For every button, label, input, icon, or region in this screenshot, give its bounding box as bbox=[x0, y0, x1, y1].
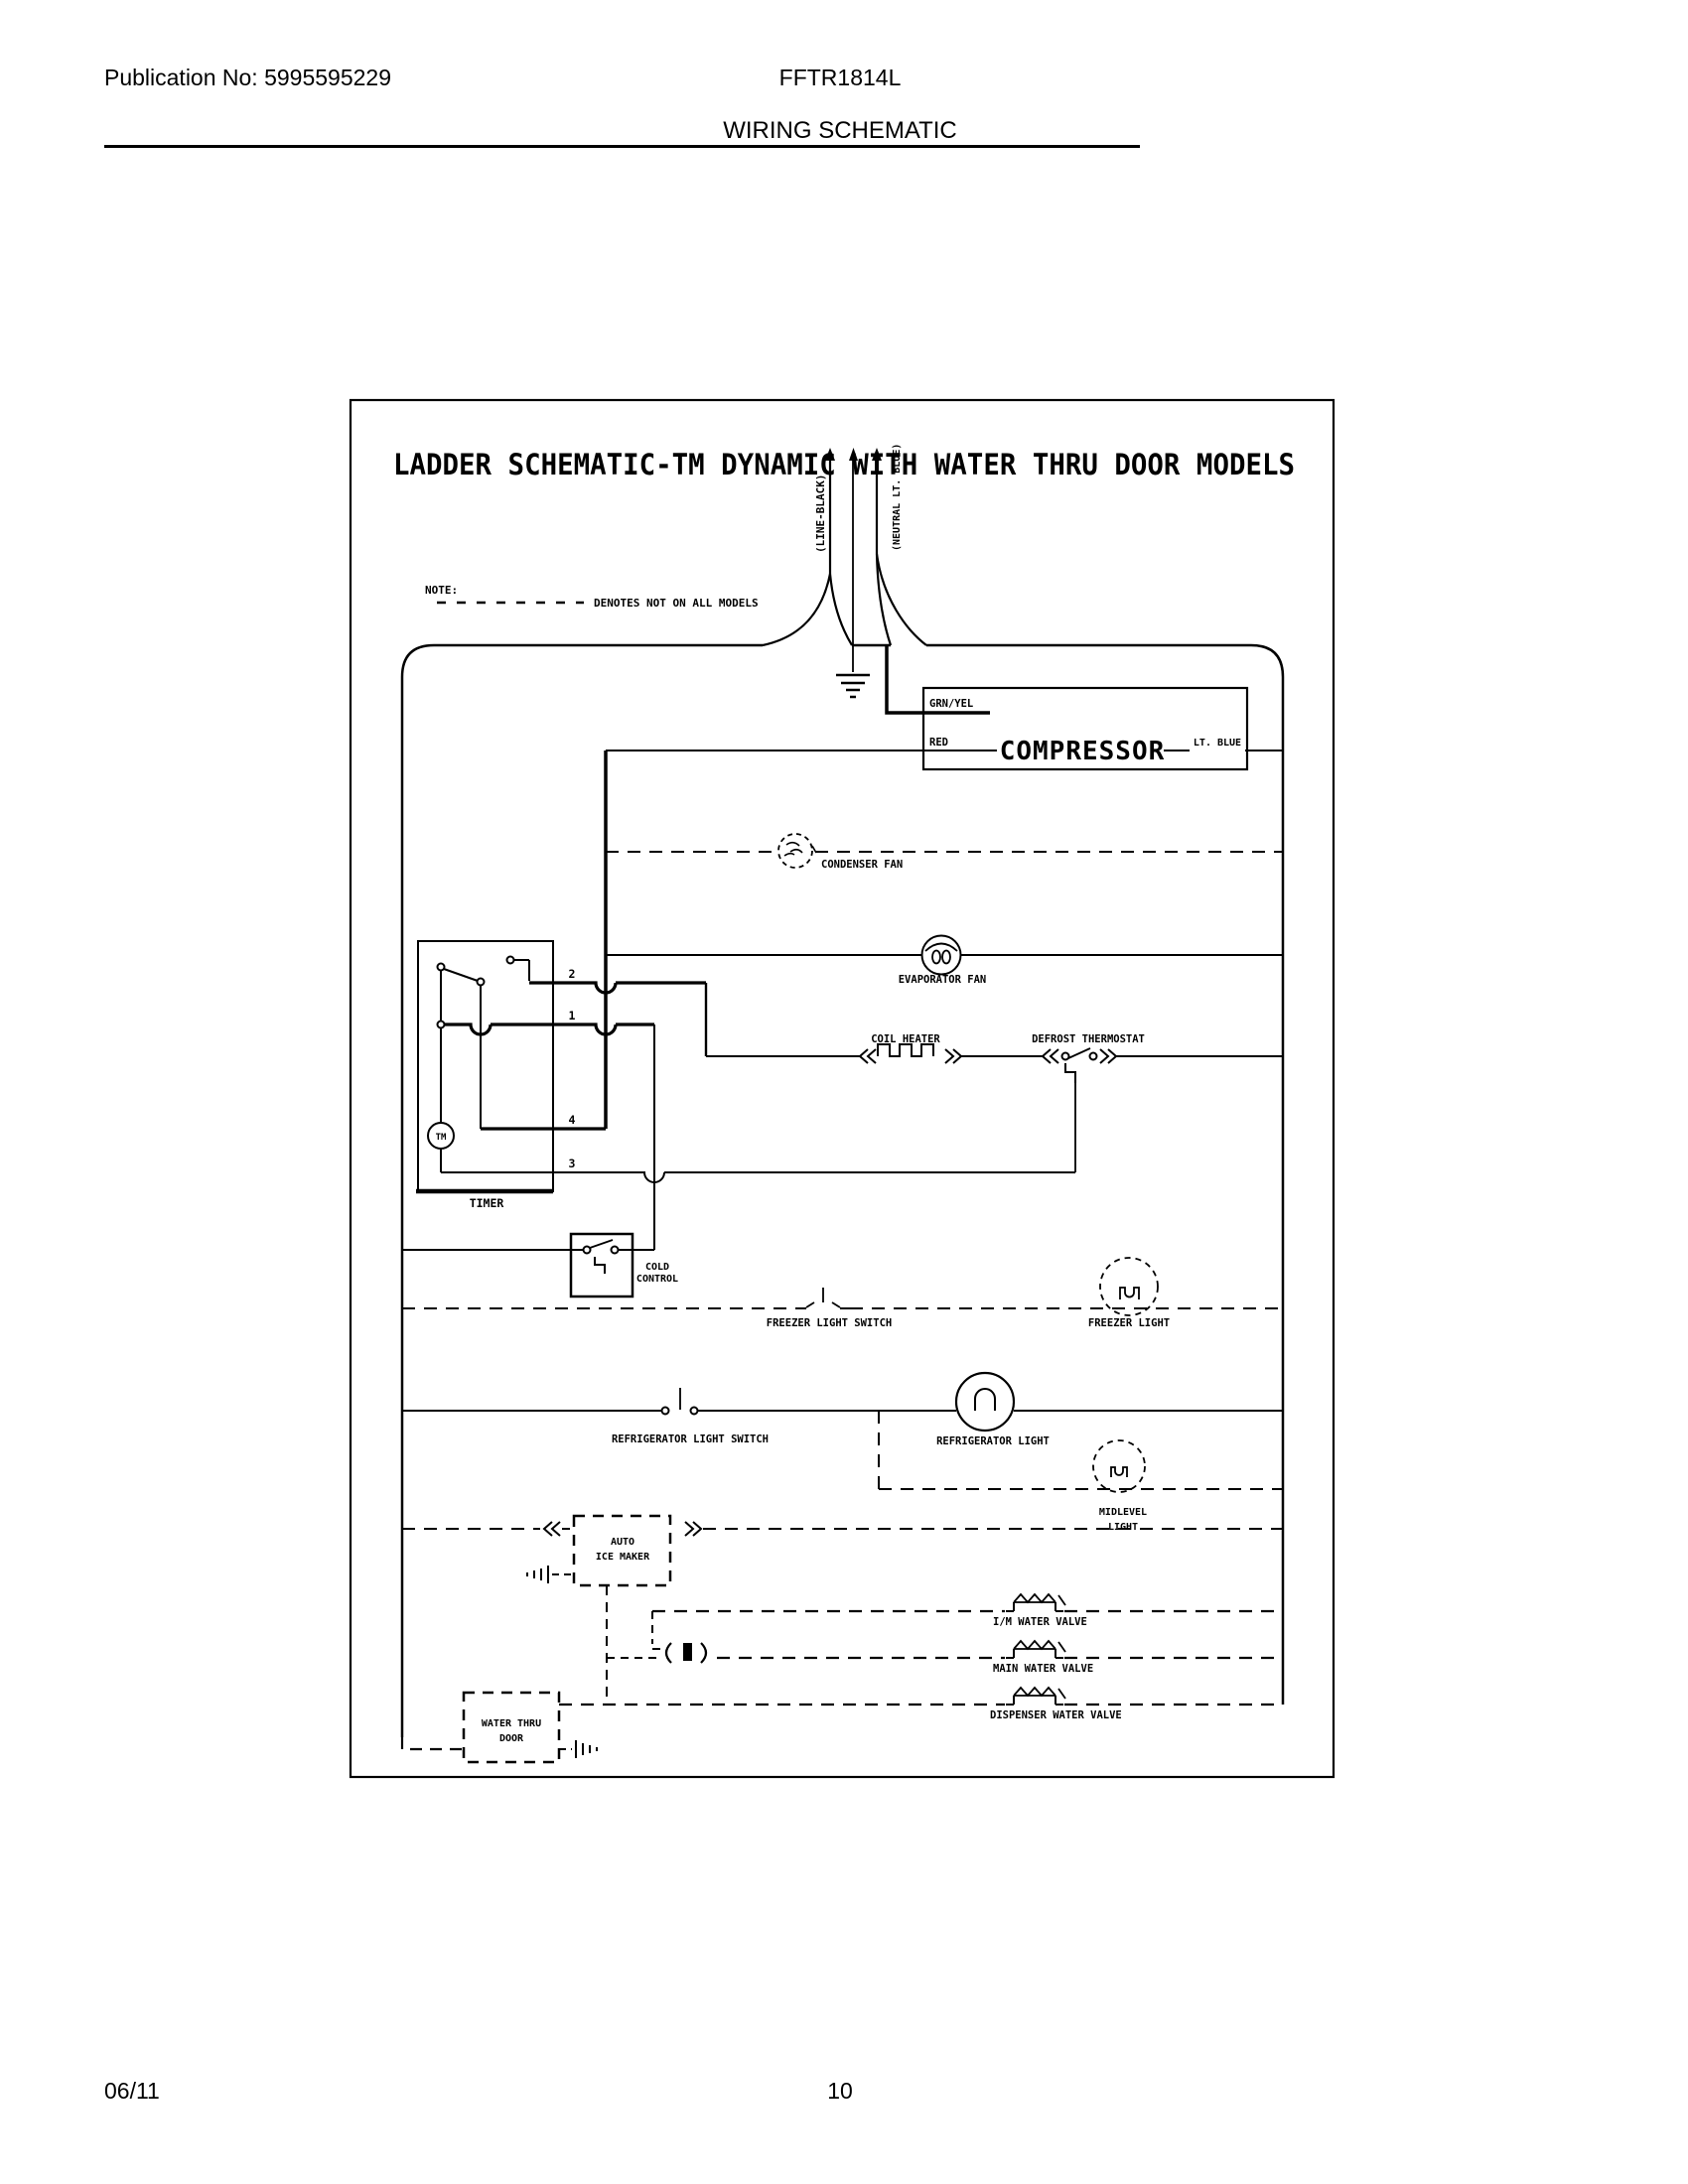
refrigerator-light-icon bbox=[956, 1373, 1014, 1431]
cold-control-sensor-icon bbox=[595, 1257, 605, 1274]
timer-wire-3 bbox=[441, 1172, 1075, 1182]
condenser-fan-label: CONDENSER FAN bbox=[821, 859, 903, 871]
refrigerator-light-switch-label: REFRIGERATOR LIGHT SWITCH bbox=[612, 1433, 769, 1445]
note-label: NOTE: bbox=[425, 584, 458, 597]
freezer-light-icon bbox=[1100, 1258, 1158, 1315]
thermostat-contact-arm-icon bbox=[1068, 1048, 1090, 1058]
midlevel-light-label: MIDLEVEL bbox=[1099, 1507, 1147, 1518]
freezer-light-label: FREEZER LIGHT bbox=[1088, 1317, 1170, 1329]
connector-chevrons-icon bbox=[945, 1049, 961, 1063]
timer-terminal-icon bbox=[478, 979, 485, 986]
auto-ice-maker-label: AUTO bbox=[611, 1537, 634, 1548]
connector-chevrons-icon bbox=[685, 1522, 701, 1536]
neutral-wire-flare-right bbox=[877, 554, 926, 645]
midlevel-light-filament-icon bbox=[1111, 1467, 1127, 1477]
main-water-valve-coil-icon bbox=[1006, 1641, 1065, 1658]
schematic-border bbox=[351, 400, 1334, 1777]
timer-box bbox=[418, 941, 553, 1191]
schematic-frame: LADDER SCHEMATIC-TM DYNAMIC WITH WATER T… bbox=[351, 400, 1334, 1777]
thermostat-terminal-icon bbox=[1062, 1053, 1069, 1060]
im-water-valve-coil-icon bbox=[1006, 1594, 1065, 1611]
condenser-fan-row: CONDENSER FAN bbox=[606, 834, 1283, 871]
timer-terminal-icon bbox=[438, 964, 445, 971]
timer-terminal-1-label: 1 bbox=[569, 1009, 576, 1023]
freezer-light-row: FREEZER LIGHT SWITCH FREEZER LIGHT bbox=[402, 1258, 1283, 1329]
coil-heater-icon bbox=[878, 1044, 933, 1056]
timer-motor-label: TM bbox=[436, 1133, 447, 1143]
page-header: Publication No: 5995595229 FFTR1814L WIR… bbox=[104, 65, 1140, 148]
chassis-ground-icon bbox=[559, 1740, 597, 1758]
timer-internal-wire bbox=[513, 960, 529, 981]
timer-terminal-4-label: 4 bbox=[569, 1113, 576, 1127]
cold-control-label: COLD bbox=[645, 1262, 669, 1273]
timer-terminal-icon bbox=[438, 1022, 445, 1028]
thermostat-sensor-icon bbox=[1065, 1063, 1075, 1083]
timer-label: TIMER bbox=[470, 1196, 504, 1210]
compressor-label: COMPRESSOR bbox=[1000, 737, 1166, 766]
footer-date: 06/11 bbox=[104, 2078, 160, 2104]
evaporator-motor-coil-icon bbox=[932, 951, 940, 964]
timer-wire-1 bbox=[444, 1024, 654, 1034]
water-thru-door-label: DOOR bbox=[499, 1733, 524, 1744]
manual-page: Publication No: 5995595229 FFTR1814L WIR… bbox=[0, 0, 1688, 2184]
chassis-ground-icon bbox=[527, 1566, 574, 1583]
schematic-note: NOTE: DENOTES NOT ON ALL MODELS bbox=[425, 584, 759, 610]
im-valve-branch-wire bbox=[652, 1611, 661, 1649]
auto-ice-maker-label: ICE MAKER bbox=[596, 1552, 650, 1563]
im-water-valve-label: I/M WATER VALVE bbox=[993, 1616, 1087, 1628]
timer-contact-arm-icon bbox=[444, 969, 478, 981]
evaporator-fan-row: EVAPORATOR FAN bbox=[606, 936, 1283, 987]
water-thru-door: WATER THRU DOOR bbox=[464, 1693, 597, 1762]
plug-connector-icon bbox=[666, 1643, 706, 1663]
coil-heater-label: COIL HEATER bbox=[871, 1033, 940, 1045]
midlevel-light-label: LIGHT bbox=[1108, 1522, 1138, 1533]
compressor: GRN/YEL RED COMPRESSOR LT. BLUE bbox=[606, 645, 1283, 769]
evaporator-fan-label: EVAPORATOR FAN bbox=[899, 974, 987, 986]
ladder-rails bbox=[402, 645, 1283, 1749]
dispenser-water-valve-label: DISPENSER WATER VALVE bbox=[990, 1709, 1122, 1721]
refrigerator-switch-terminal-icon bbox=[691, 1408, 698, 1415]
defrost-thermostat-label: DEFROST THERMOSTAT bbox=[1032, 1033, 1145, 1045]
refrigerator-light-filament-icon bbox=[975, 1389, 995, 1411]
model-number: FFTR1814L bbox=[779, 65, 902, 90]
freezer-light-switch-label: FREEZER LIGHT SWITCH bbox=[767, 1317, 892, 1329]
cold-control-row: COLD CONTROL bbox=[402, 1234, 678, 1297]
dispenser-water-valve-coil-icon bbox=[1006, 1688, 1065, 1705]
condenser-fan-icon bbox=[778, 834, 812, 868]
evaporator-fan-arc-icon bbox=[925, 944, 957, 952]
timer-terminal-2-label: 2 bbox=[569, 967, 576, 981]
note-text: DENOTES NOT ON ALL MODELS bbox=[594, 597, 759, 610]
connector-chevrons-icon bbox=[1043, 1049, 1058, 1063]
refrigerator-light-label: REFRIGERATOR LIGHT bbox=[936, 1435, 1050, 1447]
ice-maker-row: AUTO ICE MAKER bbox=[402, 1516, 1283, 1705]
cold-control-terminal-icon bbox=[612, 1247, 619, 1254]
timer-wire-2 bbox=[529, 983, 706, 993]
freezer-light-filament-icon bbox=[1120, 1288, 1139, 1299]
evaporator-fan-icon bbox=[922, 936, 961, 975]
defrost-timer: TIMER TM 2 1 4 3 bbox=[416, 941, 1075, 1250]
auto-ice-maker-box bbox=[574, 1516, 670, 1585]
lt-blue-label: LT. BLUE bbox=[1194, 738, 1241, 749]
refrigerator-light-row: REFRIGERATOR LIGHT SWITCH REFRIGERATOR L… bbox=[402, 1373, 1283, 1533]
line-wire-label: (LINE-BLACK) bbox=[814, 475, 827, 553]
schematic-title: LADDER SCHEMATIC-TM DYNAMIC WITH WATER T… bbox=[393, 448, 1295, 481]
page-title: WIRING SCHEMATIC bbox=[723, 117, 957, 144]
thermostat-terminal-icon bbox=[1090, 1053, 1097, 1060]
timer-terminal-icon bbox=[507, 957, 514, 964]
midlevel-light-icon bbox=[1093, 1440, 1145, 1492]
timer-terminal-3-label: 3 bbox=[569, 1157, 576, 1170]
grn-yel-label: GRN/YEL bbox=[929, 698, 973, 710]
page-footer: 06/11 10 bbox=[104, 2078, 853, 2104]
defrost-heater-row: COIL HEATER DEFROST THERMOSTAT bbox=[706, 1033, 1283, 1172]
right-rail bbox=[926, 645, 1283, 1705]
cold-control-label: CONTROL bbox=[636, 1274, 678, 1285]
connector-chevrons-icon bbox=[860, 1049, 876, 1063]
line-wire-flare-right bbox=[830, 574, 852, 645]
cold-control-terminal-icon bbox=[584, 1247, 591, 1254]
connector-chevrons-icon bbox=[1100, 1049, 1116, 1063]
water-thru-door-label: WATER THRU bbox=[482, 1718, 541, 1729]
neutral-wire-label: (NEUTRAL LT. BLUE) bbox=[892, 444, 903, 551]
earth-ground-icon bbox=[836, 675, 870, 697]
cold-control-arm-icon bbox=[590, 1240, 613, 1248]
header-rule bbox=[104, 145, 1140, 148]
connector-chevrons-icon bbox=[544, 1522, 560, 1536]
red-label: RED bbox=[929, 737, 948, 749]
evaporator-motor-coil-icon bbox=[942, 951, 950, 964]
refrigerator-switch-terminal-icon bbox=[662, 1408, 669, 1415]
publication-number: Publication No: 5995595229 bbox=[104, 65, 391, 90]
main-water-valve-label: MAIN WATER VALVE bbox=[993, 1663, 1093, 1675]
footer-page-number: 10 bbox=[827, 2078, 853, 2104]
line-wire-flare-left bbox=[763, 574, 830, 645]
left-rail-dashed-tail bbox=[402, 1737, 464, 1749]
freezer-light-switch-icon bbox=[806, 1288, 840, 1307]
midlevel-branch-wire bbox=[879, 1411, 1283, 1489]
wiring-schematic-canvas: Publication No: 5995595229 FFTR1814L WIR… bbox=[0, 0, 1688, 2184]
